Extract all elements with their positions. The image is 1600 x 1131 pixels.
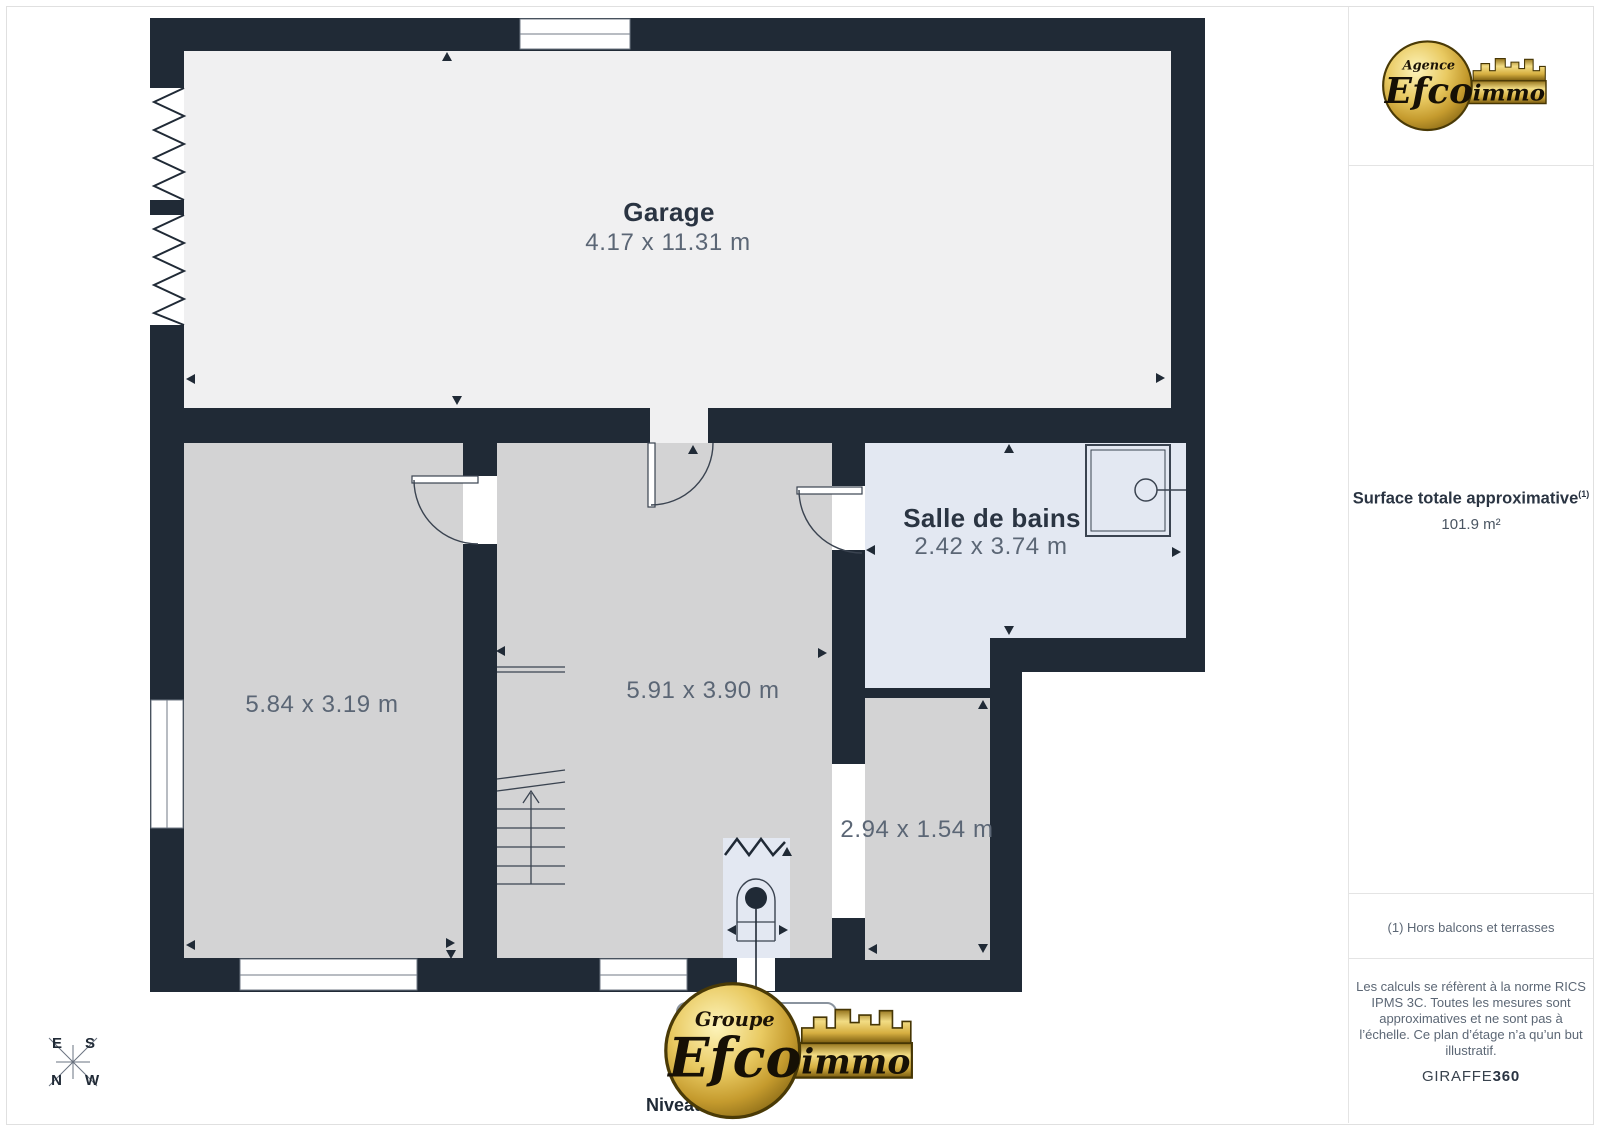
measure-arrow-icon — [727, 925, 736, 935]
door-swing-arc — [651, 443, 713, 505]
room-dims-bathroom: 2.42 x 3.74 m — [914, 533, 1067, 561]
door-leaf — [412, 476, 478, 483]
agence-efco-immo-logo: Agence Efco immo — [1376, 35, 1556, 136]
measure-arrow-icon — [452, 396, 462, 405]
key-skyline-icon — [1473, 59, 1545, 81]
measure-arrow-icon — [1172, 547, 1181, 557]
surface-label-text: Surface totale approximative — [1353, 490, 1579, 508]
measure-arrow-icon — [866, 545, 875, 555]
giraffe360-brand-360: 360 — [1493, 1068, 1520, 1085]
door-swing-arc — [799, 490, 862, 553]
logo-suffix: immo — [1473, 81, 1545, 107]
measure-arrow-icon — [818, 648, 827, 658]
garage-door-opening-2 — [150, 215, 184, 325]
door-leaf — [797, 487, 862, 494]
measure-arrow-icon — [1004, 444, 1014, 453]
compass-rose: E S N W — [49, 1035, 100, 1089]
room-dims-middle: 5.91 x 3.90 m — [626, 677, 779, 705]
measure-arrow-icon — [688, 445, 698, 454]
stair-break-line — [497, 770, 565, 779]
staircase — [497, 667, 565, 884]
folding-door-zigzag-icon — [725, 839, 785, 855]
measure-arrow-icon — [978, 700, 988, 709]
measure-arrow-icon — [186, 940, 195, 950]
measure-arrow-icon — [446, 950, 456, 959]
door-knob-icon — [745, 887, 767, 909]
giraffe360-brand-name: GIRAFFE — [1422, 1068, 1493, 1085]
room-dims-left: 5.84 x 3.19 m — [245, 691, 398, 719]
surface-value: 101.9 m² — [1349, 516, 1593, 533]
doors-group — [412, 443, 862, 553]
compass-west-label: W — [85, 1072, 100, 1089]
shower-valve-icon — [1135, 479, 1157, 501]
floorplan-page: E S N W Garage 4.17 x 11.31 m 5.84 x 3.1… — [0, 0, 1600, 1131]
stair-break-line — [497, 782, 565, 791]
key-skyline-icon — [802, 1010, 911, 1043]
surface-summary: Surface totale approximative(1) 101.9 m² — [1349, 489, 1593, 533]
measure-arrow-icon — [868, 944, 877, 954]
giraffe360-brand: GIRAFFE360 — [1349, 1068, 1593, 1085]
measure-arrow-icon — [1004, 626, 1014, 635]
room-dims-garage: 4.17 x 11.31 m — [585, 229, 750, 257]
compass-east-label: E — [52, 1035, 62, 1052]
logo-suffix: immo — [801, 1042, 910, 1082]
shower — [1086, 445, 1186, 536]
sidebar-divider — [1349, 958, 1593, 959]
measure-arrow-icon — [779, 925, 788, 935]
door-swing-arc — [414, 480, 478, 544]
surface-footnote-marker: (1) — [1578, 489, 1589, 499]
sidebar-footnote: (1) Hors balcons et terrasses — [1349, 920, 1593, 935]
garage-door-opening-1 — [150, 88, 184, 200]
measure-arrow-icon — [496, 646, 505, 656]
measure-arrow-icon — [442, 52, 452, 61]
measure-arrow-icon — [446, 938, 455, 948]
sidebar-border — [1348, 7, 1349, 1123]
surface-label: Surface totale approximative(1) — [1349, 489, 1593, 509]
room-dims-right: 2.94 x 1.54 m — [840, 816, 993, 844]
sidebar-disclaimer: Les calculs se réfèrent à la norme RICS … — [1356, 979, 1586, 1059]
door-leaf — [648, 443, 655, 507]
logo-brand: Efco — [1384, 70, 1473, 112]
compass-north-label: N — [51, 1072, 62, 1089]
room-name-bathroom: Salle de bains — [903, 503, 1081, 534]
groupe-efco-immo-logo: Groupe Efco immo — [655, 974, 927, 1127]
measure-arrow-icon — [1156, 373, 1165, 383]
measure-arrow-icon — [186, 374, 195, 384]
measure-arrow-icon — [978, 944, 988, 953]
measure-arrow-icon — [782, 847, 792, 856]
sidebar-divider — [1349, 893, 1593, 894]
logo-brand: Efco — [666, 1026, 801, 1090]
compass-south-label: S — [85, 1035, 95, 1052]
sidebar-divider — [1349, 165, 1593, 166]
room-name-garage: Garage — [623, 197, 714, 228]
plan-symbols: E S N W — [0, 0, 1348, 1131]
